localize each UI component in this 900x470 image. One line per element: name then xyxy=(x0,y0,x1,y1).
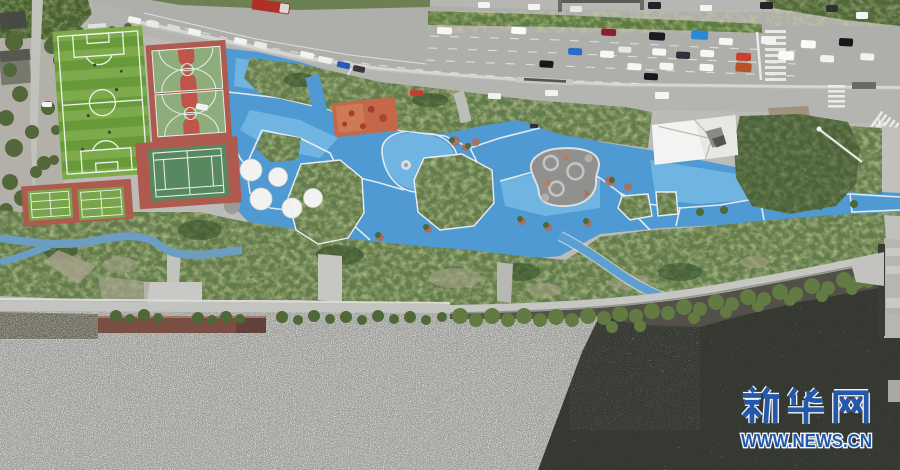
svg-text:WWW.NEWS.CN: WWW.NEWS.CN xyxy=(741,431,872,451)
